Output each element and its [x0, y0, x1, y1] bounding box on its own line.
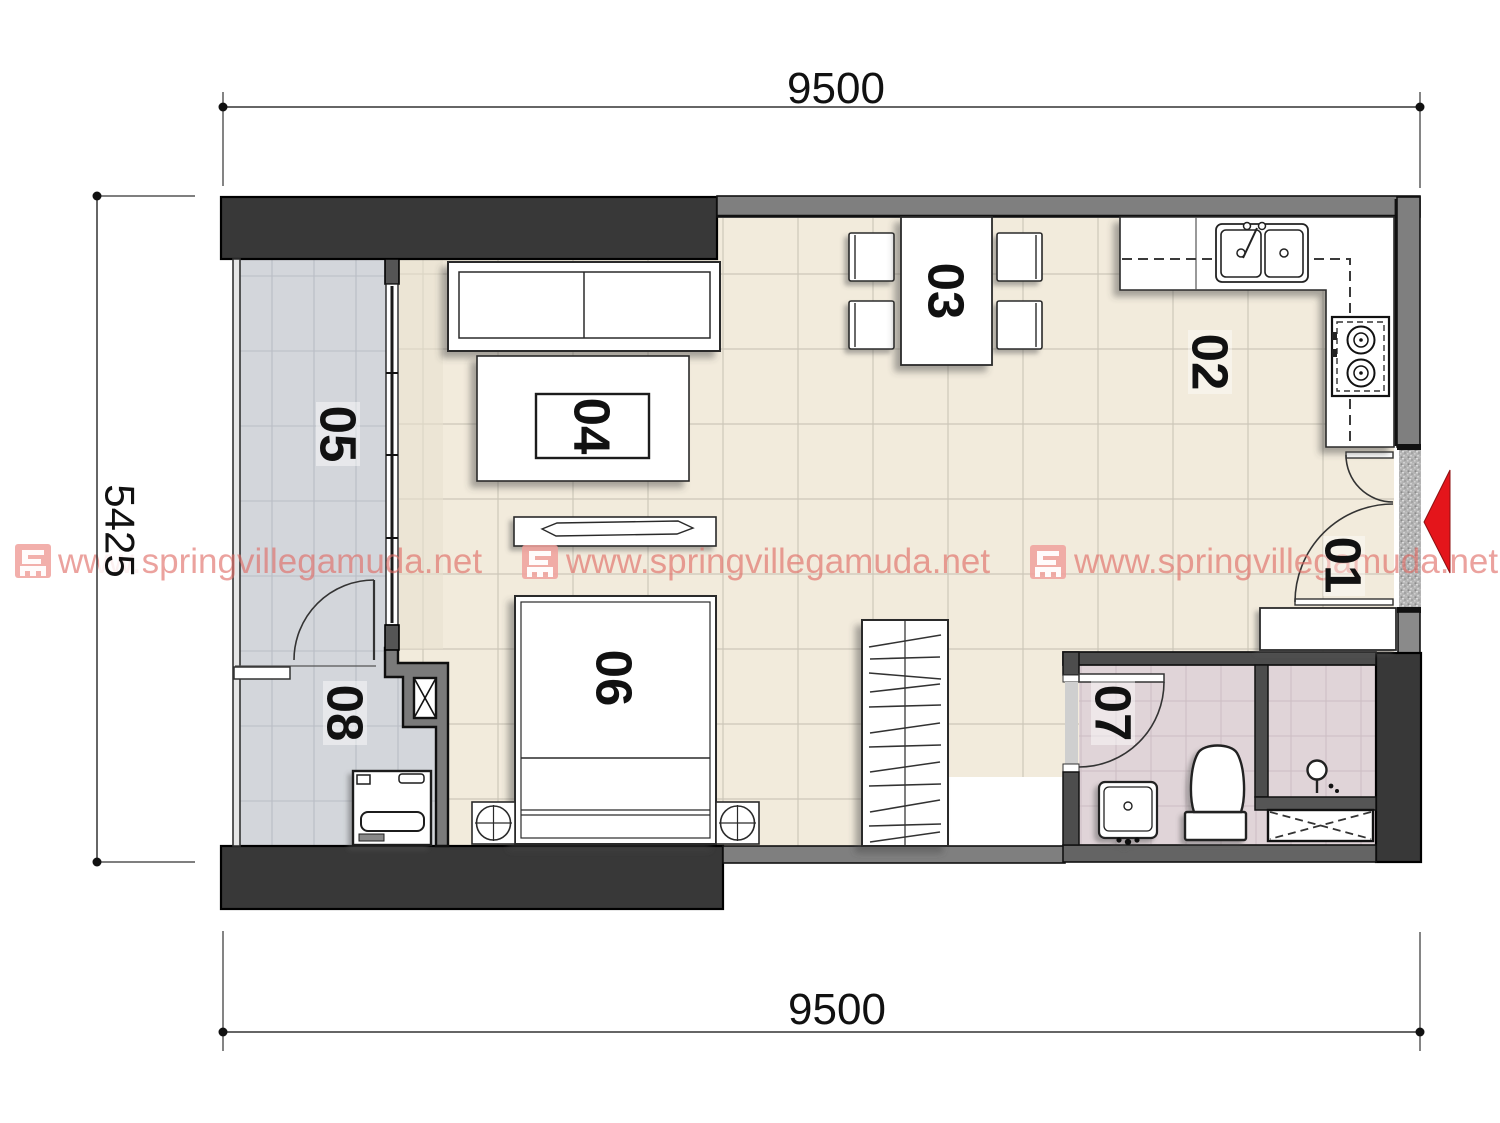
svg-text:5425: 5425 — [97, 484, 144, 577]
svg-text:www.springvillegamuda.net: www.springvillegamuda.net — [565, 542, 990, 581]
svg-text:08: 08 — [317, 685, 374, 742]
svg-text:07: 07 — [1085, 685, 1142, 742]
svg-text:04: 04 — [564, 398, 621, 455]
svg-text:9500: 9500 — [788, 985, 886, 1034]
svg-text:05: 05 — [310, 406, 367, 463]
svg-text:9500: 9500 — [787, 64, 885, 113]
svg-text:www.springvillegamuda.net: www.springvillegamuda.net — [1073, 542, 1498, 581]
svg-text:06: 06 — [586, 650, 643, 707]
svg-text:03: 03 — [918, 263, 975, 320]
svg-text:01: 01 — [1315, 537, 1372, 594]
svg-text:02: 02 — [1182, 334, 1239, 391]
